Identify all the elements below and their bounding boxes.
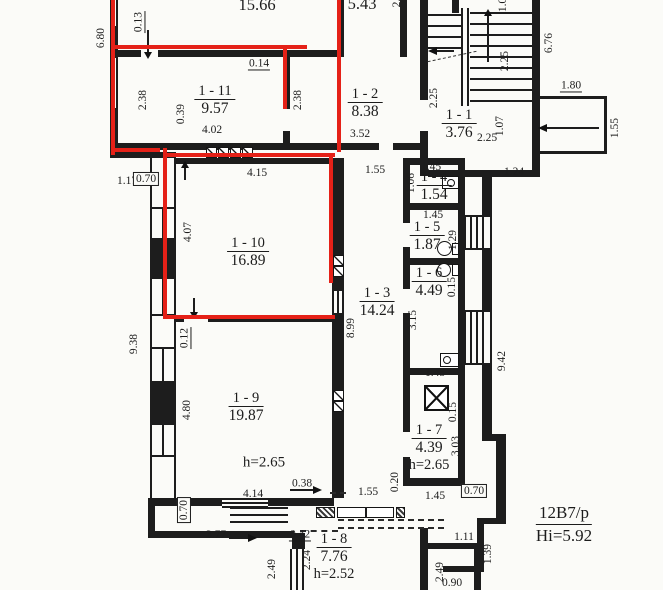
dimension-label: 8.99 bbox=[345, 318, 357, 338]
wall-segment bbox=[420, 528, 428, 590]
dimension-label: 1.45 bbox=[423, 209, 443, 221]
wall-segment bbox=[176, 158, 338, 164]
opening-dashed-line bbox=[338, 519, 444, 521]
dimension-label: 1.06 bbox=[405, 173, 417, 193]
building-note-height: Hi=5.92 bbox=[536, 525, 592, 547]
window bbox=[470, 312, 472, 365]
dimension-label: 2.38 bbox=[137, 90, 149, 110]
room-number: 1 - 11 bbox=[194, 83, 235, 100]
room-label: 1 - 119.57 bbox=[194, 82, 235, 118]
vent-icon bbox=[333, 255, 344, 266]
stair-tread bbox=[470, 100, 532, 102]
stair-tread bbox=[470, 23, 532, 25]
toilet-icon bbox=[452, 264, 459, 276]
room-label: 1 - 74.39h=2.65 bbox=[409, 421, 450, 473]
dimension-label: 2.25 bbox=[428, 88, 440, 108]
window bbox=[470, 217, 472, 250]
dimension-label: 9.38 bbox=[128, 334, 140, 354]
dimension-label: 0.70 bbox=[177, 497, 191, 523]
floor-plan: 15.665.431 - 119.571 - 28.381 - 13.761 -… bbox=[0, 0, 663, 590]
vent-icon bbox=[333, 401, 344, 412]
wall-segment bbox=[482, 176, 492, 217]
room-area: 1.87 bbox=[410, 236, 445, 253]
room-number: 1 - 1 bbox=[442, 107, 477, 124]
wall-segment bbox=[496, 440, 506, 524]
room-label: 1 - 314.24 bbox=[360, 284, 395, 320]
dimension-label: 1.11 bbox=[454, 531, 474, 543]
porch-step bbox=[230, 514, 288, 516]
wall-segment bbox=[532, 0, 540, 172]
room-area: 4.39 bbox=[409, 439, 450, 456]
window bbox=[337, 291, 339, 313]
highlight-line bbox=[111, 45, 307, 49]
wall-segment bbox=[332, 277, 344, 291]
room-number: 1 - 3 bbox=[360, 285, 395, 302]
dimension-label: 0.15 bbox=[447, 402, 459, 422]
room-area: 5.43 bbox=[348, 0, 377, 13]
highlight-line bbox=[165, 153, 335, 157]
vent-icon bbox=[333, 390, 344, 401]
dimension-label: 1.39 bbox=[482, 544, 494, 564]
room-area: 14.24 bbox=[360, 302, 395, 319]
opening-dashed-line bbox=[338, 527, 444, 529]
room-area: 16.89 bbox=[227, 252, 269, 269]
dimension-label: 1.55 bbox=[358, 486, 378, 498]
highlight-line bbox=[111, 148, 160, 152]
dimension-label: 1.29 bbox=[447, 230, 459, 250]
dimension-label: 1.55 bbox=[609, 118, 621, 138]
stair-tread bbox=[428, 25, 462, 27]
window bbox=[222, 502, 268, 504]
highlight-line bbox=[337, 0, 341, 152]
dimension-label: 3.15 bbox=[407, 310, 419, 330]
dimension-label: 1.80 bbox=[560, 79, 582, 92]
wall-segment bbox=[283, 143, 379, 150]
room-label: 15.66 bbox=[238, 0, 275, 14]
dimension-label: 4.14 bbox=[243, 488, 263, 500]
dimension-label: 4.15 bbox=[247, 167, 267, 179]
stair-tread bbox=[428, 14, 462, 16]
dimension-label: 1.24 bbox=[504, 166, 524, 178]
room-area: 4.49 bbox=[412, 282, 447, 299]
room-number: 1 - 8 bbox=[317, 531, 352, 548]
door-arrow bbox=[184, 166, 186, 180]
dimension-label: 6.80 bbox=[95, 28, 107, 48]
porch-wall bbox=[540, 96, 607, 99]
room-area: 1.54 bbox=[417, 186, 452, 203]
room-area: 3.76 bbox=[442, 124, 477, 141]
wall-segment bbox=[482, 434, 506, 441]
dimension-arrow-icon bbox=[313, 486, 322, 494]
dimension-label: 1.45 bbox=[425, 367, 445, 379]
wall-segment bbox=[332, 412, 344, 498]
room-area: 15.66 bbox=[238, 0, 275, 14]
window-sill bbox=[150, 381, 176, 383]
stair-arrow-icon bbox=[428, 47, 437, 55]
dimension-label: 2.24 bbox=[301, 550, 313, 570]
room-number: 1 - 9 bbox=[229, 390, 264, 407]
room-number: 1 - 10 bbox=[227, 235, 269, 252]
porch-step bbox=[230, 507, 288, 509]
window bbox=[476, 217, 478, 250]
room-height: h=2.52 bbox=[314, 566, 355, 582]
window-sill bbox=[150, 423, 176, 425]
dimension-label: 3.77 bbox=[206, 529, 226, 541]
wall-segment bbox=[268, 498, 334, 506]
porch-wall bbox=[604, 96, 607, 154]
dimension-arrow-icon bbox=[248, 534, 257, 542]
shaft-icon bbox=[424, 385, 449, 411]
wall-segment bbox=[332, 158, 344, 256]
dimension-label: 2.49 bbox=[266, 559, 278, 579]
window bbox=[290, 549, 292, 590]
stair-tread bbox=[470, 89, 532, 91]
highlight-line bbox=[111, 0, 115, 155]
window bbox=[296, 549, 298, 590]
vent-icon bbox=[333, 266, 344, 277]
window-sill bbox=[150, 347, 176, 349]
stair-stringer bbox=[461, 8, 463, 106]
highlight-line bbox=[329, 153, 333, 283]
wall-segment bbox=[393, 143, 428, 150]
stair-direction-line bbox=[487, 16, 489, 62]
room-label: 1 - 51.87 bbox=[410, 218, 445, 254]
wall-pier bbox=[150, 383, 176, 423]
highlight-line bbox=[163, 315, 335, 319]
dimension-label: 3.03 bbox=[450, 436, 462, 456]
room-number: 1 - 6 bbox=[412, 265, 447, 282]
partition-hatch bbox=[316, 507, 335, 518]
dimension-label: 4.80 bbox=[181, 400, 193, 420]
room-label: 1 - 87.76h=2.52 bbox=[314, 530, 355, 582]
sink-icon bbox=[443, 356, 451, 364]
room-number: 1 - 5 bbox=[410, 219, 445, 236]
wall-segment bbox=[482, 365, 492, 440]
room-number: 1 - 2 bbox=[348, 86, 383, 103]
room-area: 7.76 bbox=[314, 548, 355, 565]
dimension-label: 2. bbox=[391, 0, 403, 7]
room-label: 1 - 13.76 bbox=[442, 106, 477, 142]
dimension-label: 1.55 bbox=[365, 164, 385, 176]
dimension-label: 3.52 bbox=[350, 128, 370, 140]
room-label: 1 - 28.38 bbox=[348, 85, 383, 121]
dimension-label: 1.45 bbox=[425, 490, 445, 502]
wall-segment bbox=[420, 0, 428, 100]
highlight-line bbox=[283, 45, 287, 109]
building-note: 12В7/р Hi=5.92 bbox=[536, 502, 592, 547]
room-area: 19.87 bbox=[229, 407, 264, 424]
dimension-label: 0.20 bbox=[389, 472, 401, 492]
window bbox=[162, 347, 164, 383]
room-label: 1 - 1016.89 bbox=[227, 234, 269, 270]
building-note-litera: 12В7/р bbox=[536, 502, 592, 525]
wall-segment bbox=[400, 0, 407, 57]
room-label: 1 - 41.54 bbox=[417, 168, 452, 204]
window bbox=[162, 423, 164, 457]
wall-segment bbox=[452, 0, 459, 13]
dimension-label: 0.39 bbox=[175, 104, 187, 124]
dimension-label: 2.25 bbox=[499, 51, 511, 71]
door-arrow-icon bbox=[144, 52, 152, 59]
porch-wall bbox=[540, 151, 607, 154]
dimension-label: 2.38 bbox=[292, 90, 304, 110]
wall-segment bbox=[482, 250, 492, 312]
window bbox=[476, 312, 478, 365]
wall-segment bbox=[403, 265, 410, 289]
dimension-label: 0.90 bbox=[442, 577, 462, 589]
dimension-label: 0.13 bbox=[132, 11, 145, 33]
stair-tread bbox=[470, 45, 532, 47]
wall-segment bbox=[426, 543, 480, 549]
stair-tread bbox=[470, 78, 532, 80]
dimension-label: 9.42 bbox=[496, 351, 508, 371]
dimension-label: 4.02 bbox=[202, 124, 222, 136]
room-area: 8.38 bbox=[348, 103, 383, 120]
room-area: 9.57 bbox=[194, 100, 235, 117]
dimension-label: 0.70 bbox=[133, 172, 159, 186]
dimension-label: 6.76 bbox=[543, 33, 555, 53]
wall-segment bbox=[332, 313, 344, 390]
dimension-label: 0.12 bbox=[178, 327, 191, 349]
entry-arrow-icon bbox=[538, 124, 547, 132]
room-height: h=2.65 bbox=[243, 455, 285, 472]
wall-segment bbox=[403, 478, 465, 486]
dimension-label: 0.15 bbox=[446, 277, 458, 297]
door-arrow bbox=[147, 30, 149, 54]
room-label: 1 - 919.87 bbox=[229, 389, 264, 425]
window-sill bbox=[150, 455, 176, 457]
dimension-label: 0.14 bbox=[248, 57, 270, 70]
stair-up-arrow-icon bbox=[484, 9, 492, 16]
dimension-label: 0.42 bbox=[289, 528, 311, 541]
partition-tick bbox=[365, 507, 367, 518]
highlight-line bbox=[163, 148, 167, 319]
entry-arrow bbox=[546, 127, 599, 129]
stair-tread bbox=[470, 34, 532, 36]
dimension-label: 0.70 bbox=[461, 484, 487, 498]
room-label: 1 - 64.49 bbox=[412, 264, 447, 300]
dimension-label: 1.07 bbox=[494, 116, 506, 136]
wall-segment bbox=[474, 549, 481, 590]
dimension-dashed-line bbox=[330, 492, 346, 494]
stair-tread bbox=[428, 36, 462, 38]
room-label: 5.43 bbox=[348, 0, 377, 13]
partition-hatch bbox=[396, 507, 405, 518]
dimension-label: 1.45 bbox=[421, 161, 441, 173]
dimension-label: 1.07 bbox=[497, 0, 509, 12]
door-arrow-icon bbox=[181, 161, 189, 168]
wall-segment bbox=[158, 50, 338, 57]
stair-tread bbox=[470, 12, 532, 14]
stair-stringer bbox=[467, 8, 469, 106]
room-height: h=2.65 bbox=[409, 457, 450, 473]
dimension-label: 0.38 bbox=[291, 477, 313, 490]
dimension-label: 4.07 bbox=[182, 222, 194, 242]
room-number: 1 - 7 bbox=[412, 422, 447, 439]
porch-step bbox=[230, 521, 288, 523]
